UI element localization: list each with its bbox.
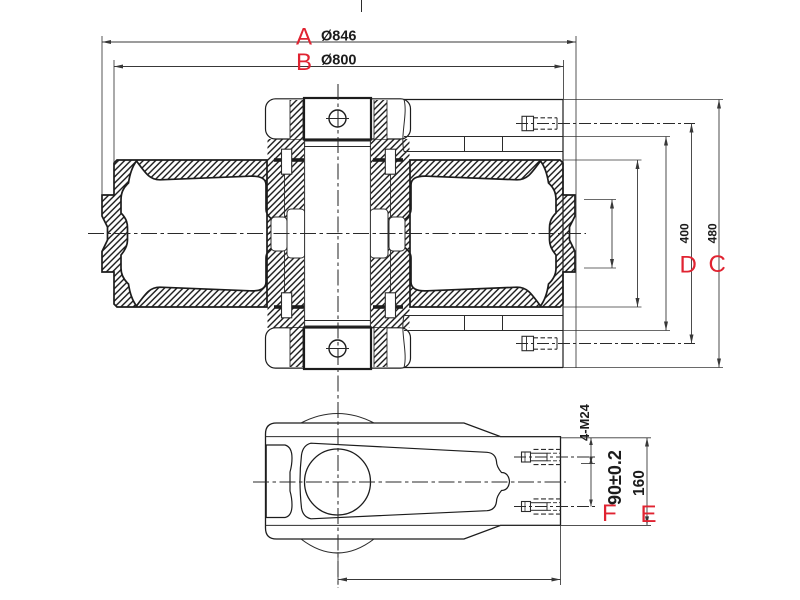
svg-text:B: B [296, 49, 312, 76]
svg-text:E: E [641, 501, 657, 528]
svg-text:A: A [296, 24, 312, 51]
svg-text:90±0.2: 90±0.2 [605, 450, 625, 505]
svg-text:160: 160 [631, 470, 648, 496]
svg-text:Ø846: Ø846 [321, 29, 356, 45]
svg-text:D: D [680, 252, 697, 279]
svg-text:F: F [602, 500, 617, 527]
svg-text:Ø800: Ø800 [321, 53, 356, 69]
svg-text:480: 480 [706, 223, 720, 243]
svg-text:C: C [709, 251, 726, 278]
svg-text:4-M24: 4-M24 [577, 403, 592, 441]
svg-text:400: 400 [678, 223, 692, 243]
